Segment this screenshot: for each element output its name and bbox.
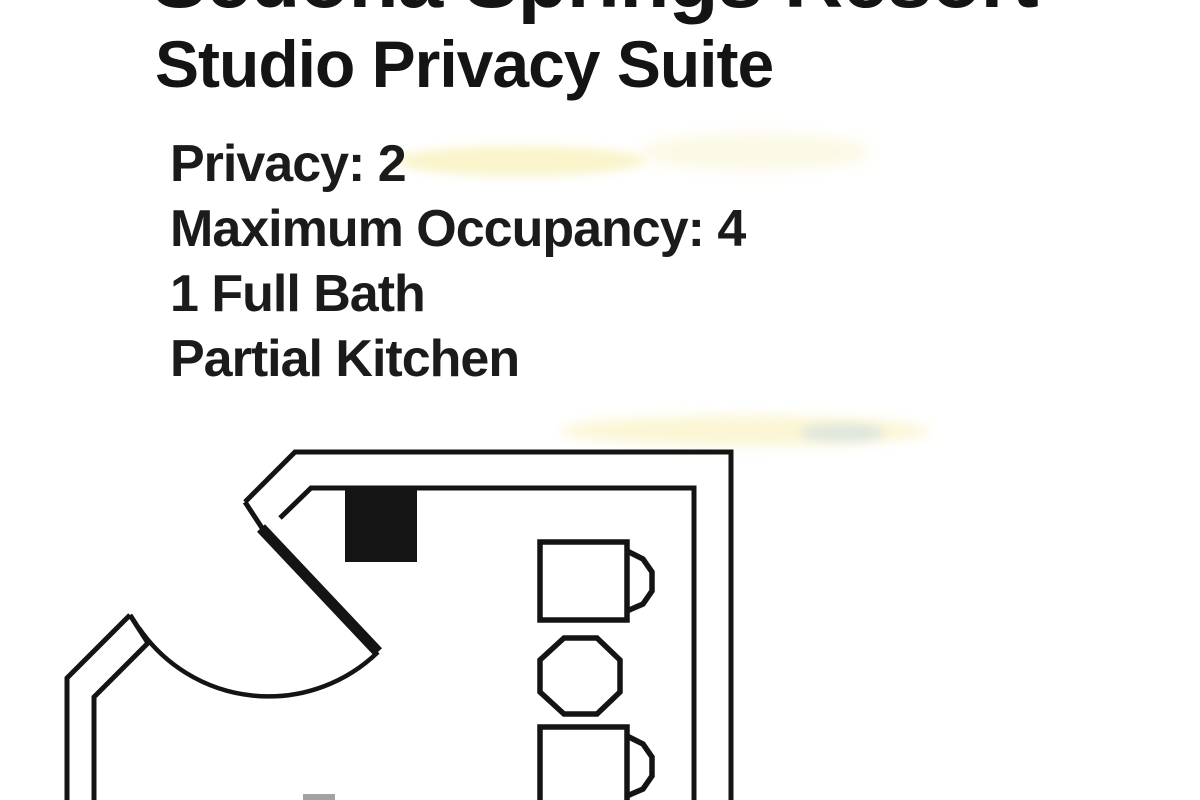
wall-left-outer — [67, 615, 130, 800]
page-artwork: Sedona Springs Resort Studio Privacy Sui… — [0, 0, 1200, 800]
resort-floorplan-page: Sedona Springs Resort Studio Privacy Sui… — [0, 0, 1200, 800]
door-swing-arc — [139, 628, 378, 696]
floor-plan — [0, 0, 1200, 800]
wall-entry-jamb — [245, 502, 264, 531]
dining-chair-bottom-back — [627, 736, 652, 796]
solid-wall-fixture — [345, 489, 417, 562]
dining-chair-bottom-seat — [540, 727, 627, 800]
dining-chair-top-back — [627, 551, 652, 611]
wall-top-right-outer — [245, 452, 731, 800]
dining-chair-top-seat — [540, 542, 627, 620]
wall-left-inner — [94, 643, 148, 800]
dining-table — [540, 638, 620, 714]
cropped-object-bottom-edge — [303, 794, 335, 800]
